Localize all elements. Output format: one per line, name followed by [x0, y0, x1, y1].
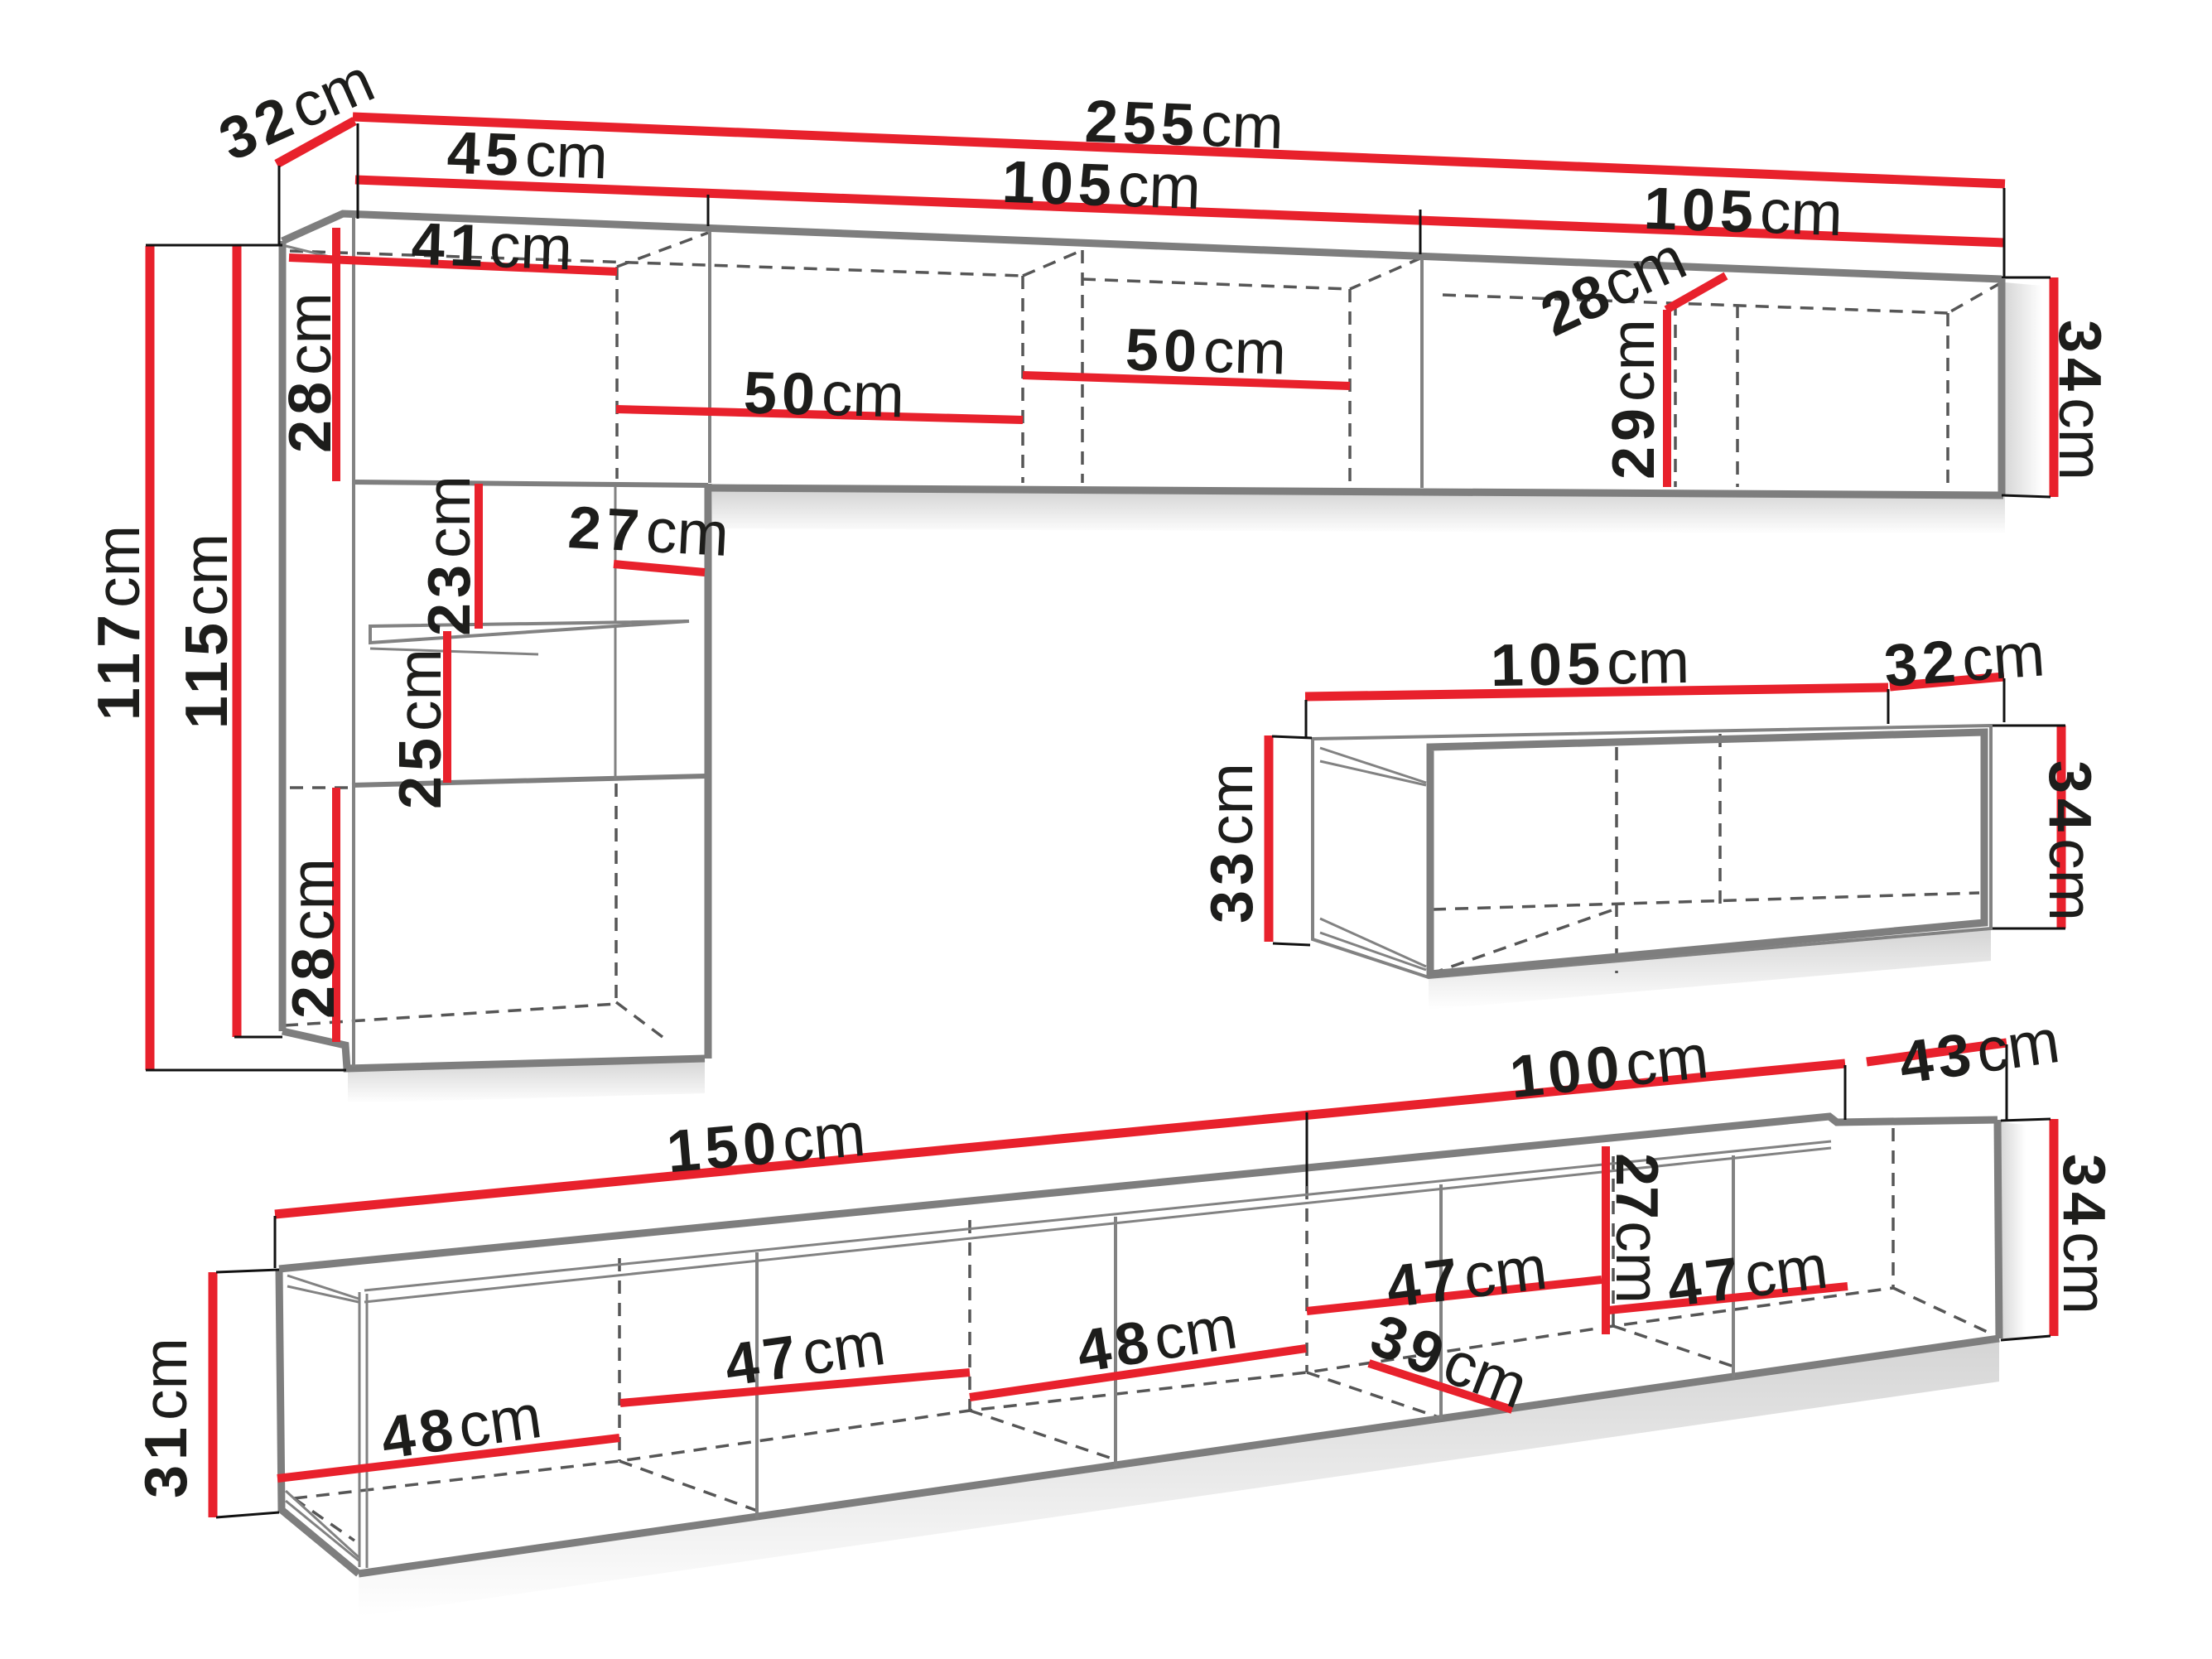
svg-text:50cm: 50cm — [1125, 313, 1287, 387]
svg-text:23cm: 23cm — [413, 475, 483, 636]
svg-text:45cm: 45cm — [446, 117, 610, 192]
svg-text:25cm: 25cm — [384, 649, 454, 809]
svg-text:29cm: 29cm — [1598, 319, 1667, 480]
svg-text:34cm: 34cm — [2051, 1154, 2120, 1314]
svg-text:50cm: 50cm — [743, 356, 905, 430]
svg-text:28cm: 28cm — [277, 858, 347, 1019]
svg-text:28cm: 28cm — [274, 292, 344, 453]
svg-text:27cm: 27cm — [1603, 1153, 1673, 1304]
svg-text:255cm: 255cm — [1084, 85, 1285, 162]
svg-text:34cm: 34cm — [2036, 760, 2106, 921]
svg-text:34cm: 34cm — [2046, 320, 2116, 480]
svg-text:105cm: 105cm — [1001, 146, 1202, 222]
svg-text:41cm: 41cm — [411, 208, 574, 283]
svg-text:31cm: 31cm — [130, 1338, 200, 1498]
svg-text:33cm: 33cm — [1196, 763, 1265, 924]
svg-text:117cm: 117cm — [83, 525, 152, 721]
svg-text:115cm: 115cm — [171, 533, 240, 729]
svg-text:105cm: 105cm — [1490, 626, 1690, 699]
svg-text:32cm: 32cm — [1882, 619, 2046, 699]
svg-text:27cm: 27cm — [566, 491, 730, 569]
